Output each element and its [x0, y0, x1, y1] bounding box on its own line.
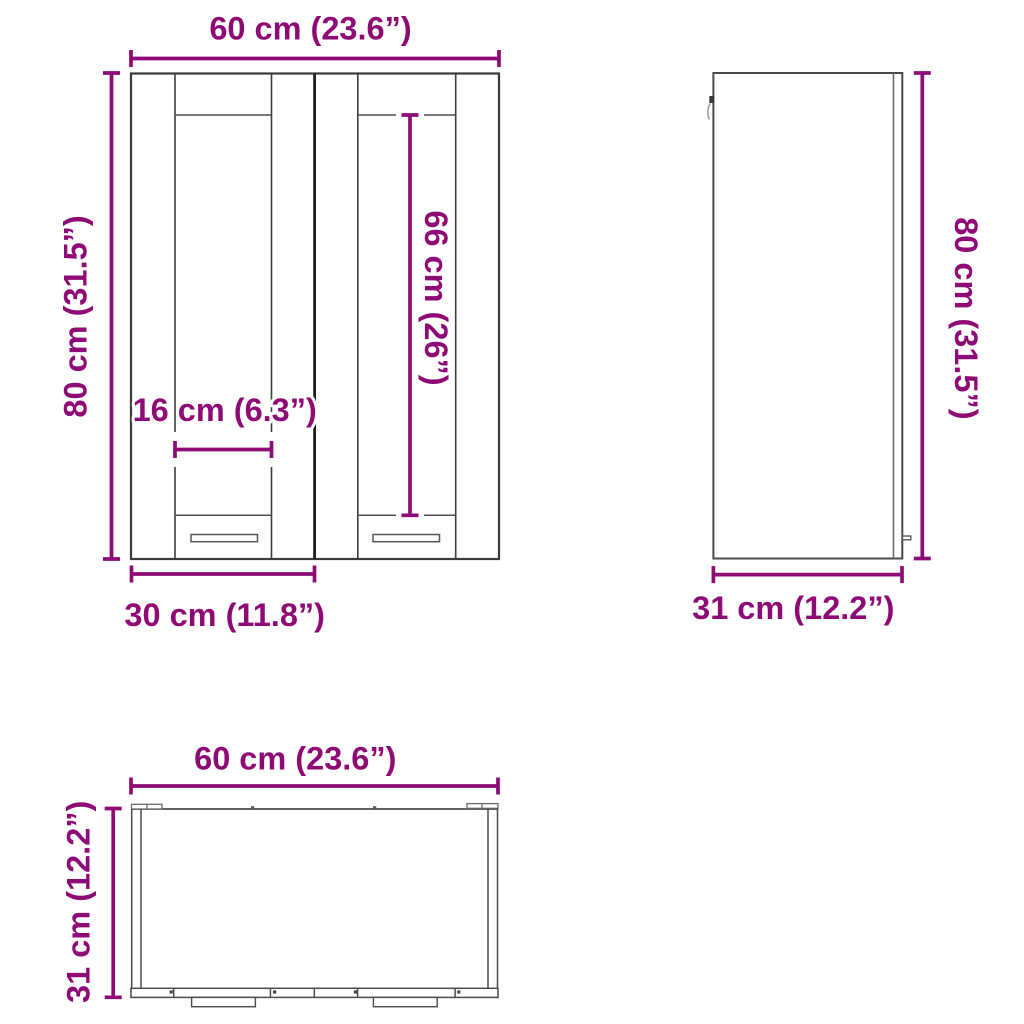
svg-text:80 cm (31.5”): 80 cm (31.5”) [58, 215, 94, 417]
svg-text:31 cm (12.2”): 31 cm (12.2”) [692, 590, 894, 626]
svg-text:16 cm (6.3”): 16 cm (6.3”) [133, 392, 317, 428]
svg-text:31 cm (12.2”): 31 cm (12.2”) [61, 801, 97, 1003]
svg-text:80 cm (31.5”): 80 cm (31.5”) [948, 217, 984, 419]
svg-text:60 cm (23.6”): 60 cm (23.6”) [209, 11, 411, 47]
svg-text:30 cm (11.8”): 30 cm (11.8”) [124, 597, 325, 633]
svg-text:60 cm (23.6”): 60 cm (23.6”) [194, 740, 396, 776]
svg-text:66 cm (26”): 66 cm (26”) [418, 210, 454, 385]
